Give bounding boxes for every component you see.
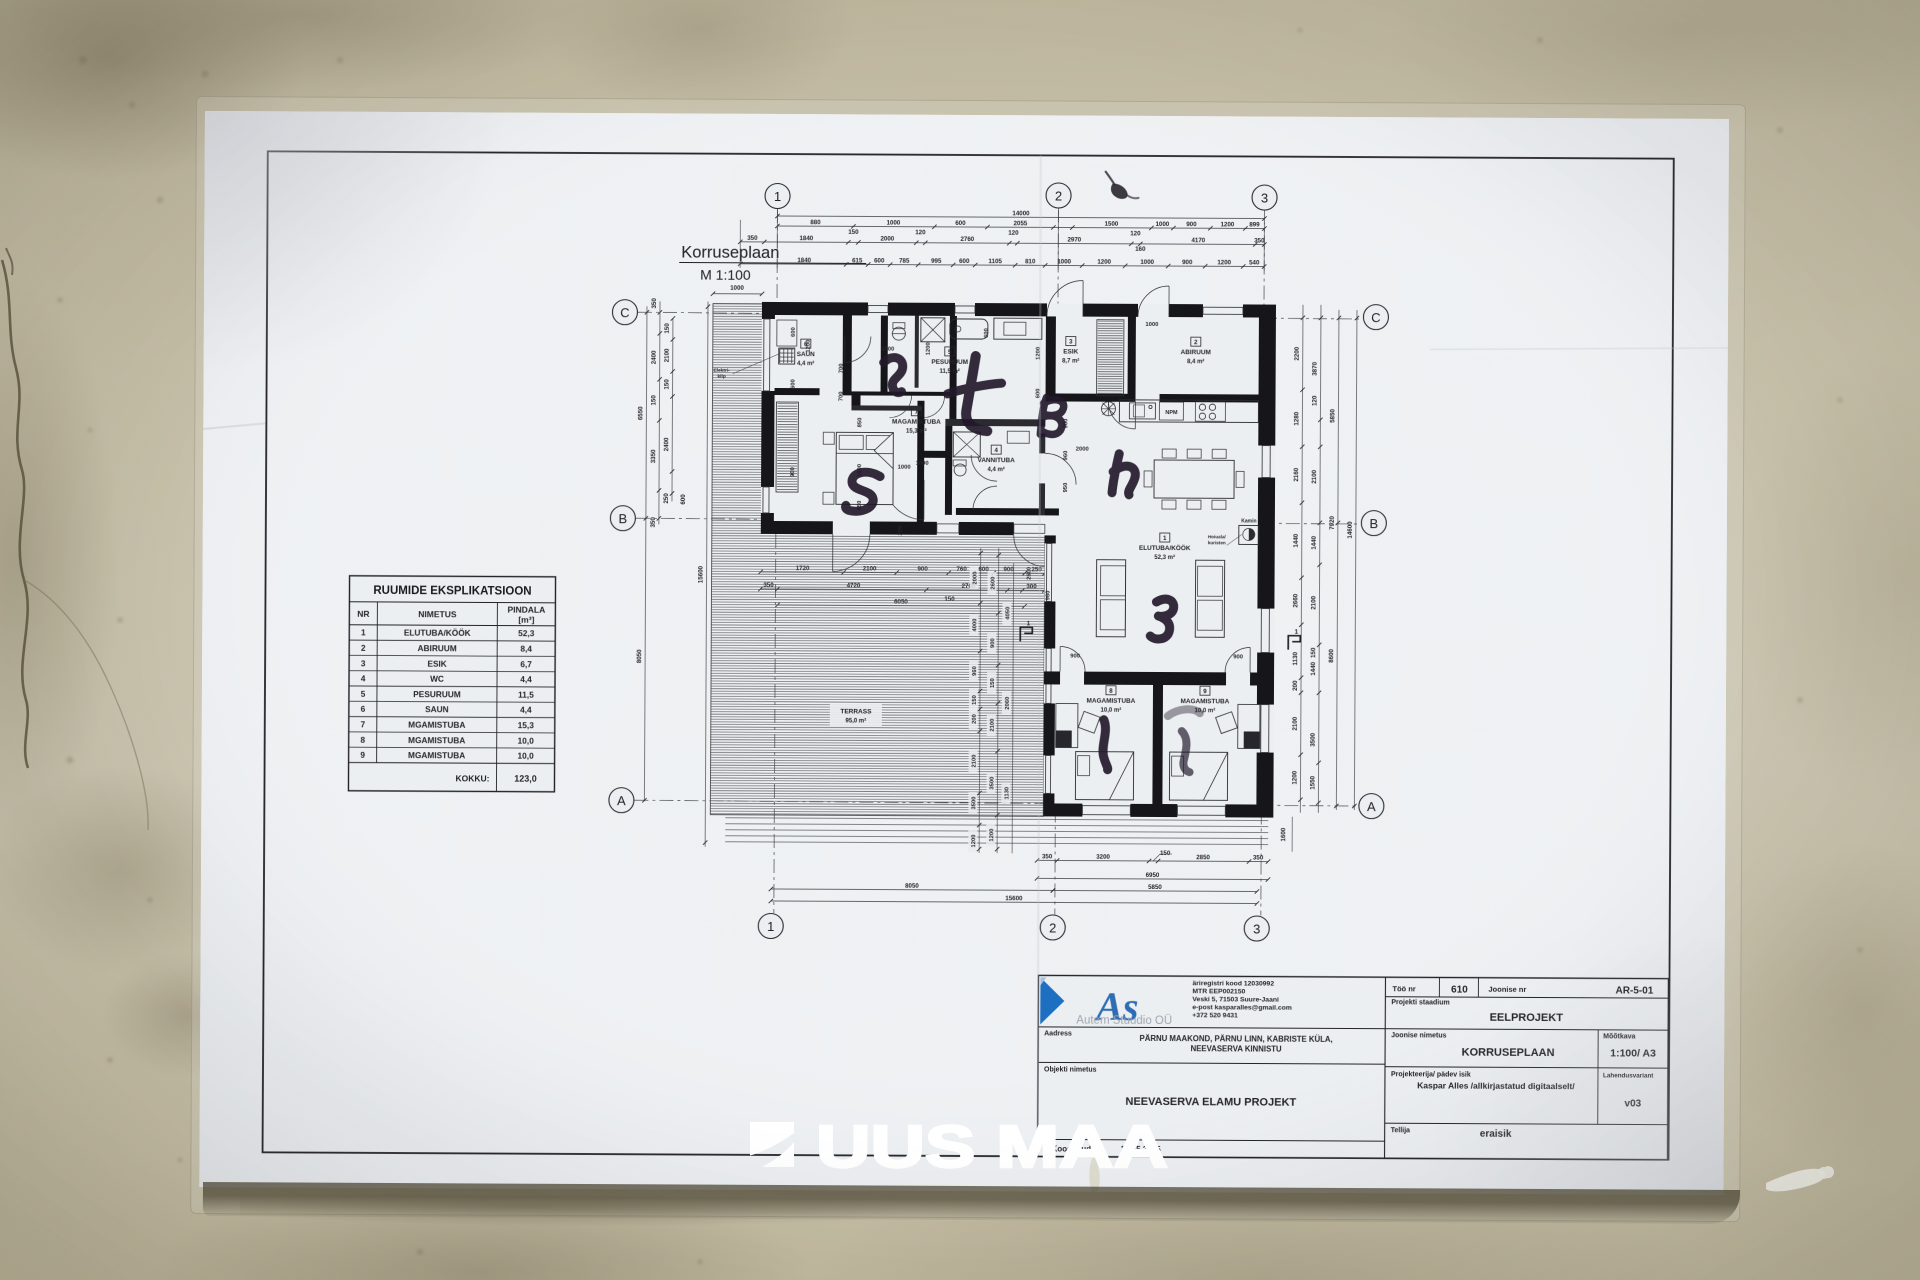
svg-text:2200: 2200 [1294, 346, 1301, 360]
svg-text:äriregistri kood 12030992: äriregistri kood 12030992 [1192, 980, 1274, 987]
svg-text:160: 160 [1135, 246, 1146, 253]
svg-text:960: 960 [972, 666, 978, 676]
svg-text:4,4: 4,4 [520, 674, 532, 684]
svg-text:2: 2 [1194, 339, 1198, 346]
svg-text:3200: 3200 [1096, 853, 1110, 860]
svg-text:1: 1 [1294, 629, 1298, 636]
svg-text:5: 5 [948, 349, 952, 356]
svg-text:150: 150 [650, 395, 657, 406]
svg-text:15600: 15600 [1005, 895, 1023, 902]
svg-text:1000: 1000 [1140, 259, 1154, 266]
svg-text:200: 200 [972, 714, 978, 724]
svg-text:850: 850 [857, 418, 863, 428]
svg-text:11,5 m²: 11,5 m² [939, 368, 959, 375]
svg-text:2760: 2760 [960, 236, 974, 243]
svg-text:1: 1 [361, 627, 366, 637]
svg-text:4: 4 [361, 673, 366, 683]
svg-text:6050: 6050 [894, 598, 908, 605]
svg-text:Aadress: Aadress [1044, 1030, 1072, 1037]
svg-text:3: 3 [1253, 921, 1260, 936]
svg-text:7920: 7920 [1329, 515, 1336, 529]
svg-text:2850: 2850 [1196, 854, 1210, 861]
svg-text:2100: 2100 [990, 719, 996, 732]
svg-text:Autem Stuudio OÜ: Autem Stuudio OÜ [1076, 1015, 1172, 1028]
svg-text:600: 600 [874, 257, 885, 264]
svg-text:600: 600 [955, 220, 966, 227]
svg-text:PÄRNU MAAKOND, PÄRNU LINN, KAB: PÄRNU MAAKOND, PÄRNU LINN, KABRISTE KÜLA… [1140, 1034, 1333, 1044]
svg-text:6550: 6550 [637, 406, 644, 420]
svg-text:10,0: 10,0 [518, 735, 535, 745]
svg-text:1200: 1200 [1291, 770, 1298, 784]
svg-text:1000: 1000 [916, 461, 929, 467]
svg-text:VANNITUBA: VANNITUBA [978, 457, 1016, 464]
svg-text:2600: 2600 [991, 577, 997, 590]
svg-text:120: 120 [915, 229, 926, 236]
svg-text:8050: 8050 [636, 649, 643, 663]
svg-text:1280: 1280 [1293, 411, 1300, 425]
svg-text:4,4: 4,4 [520, 705, 532, 715]
svg-text:600: 600 [959, 258, 970, 265]
svg-text:Objekti nimetus: Objekti nimetus [1044, 1066, 1097, 1073]
svg-text:2000: 2000 [881, 347, 894, 353]
svg-text:C: C [1371, 310, 1380, 325]
svg-text:2000: 2000 [1076, 447, 1089, 453]
svg-text:2100: 2100 [664, 348, 671, 362]
svg-text:Töö nr: Töö nr [1392, 984, 1415, 993]
svg-text:Elektri-: Elektri- [713, 368, 730, 374]
svg-text:6,7: 6,7 [520, 659, 532, 669]
svg-text:4,4 m²: 4,4 m² [987, 466, 1004, 473]
svg-text:ABIRUUM: ABIRUUM [1181, 349, 1211, 356]
svg-text:8: 8 [1109, 688, 1113, 695]
svg-text:NEEVASERVA ELAMU PROJEKT: NEEVASERVA ELAMU PROJEKT [1125, 1096, 1296, 1109]
svg-text:7: 7 [915, 409, 919, 416]
svg-text:900: 900 [1070, 654, 1080, 660]
svg-text:15,3 m²: 15,3 m² [906, 428, 927, 435]
svg-text:4,4 m²: 4,4 m² [797, 360, 814, 367]
svg-text:8,4 m²: 8,4 m² [1187, 358, 1204, 365]
svg-text:1000: 1000 [1057, 258, 1071, 265]
svg-text:NIMETUS: NIMETUS [418, 609, 457, 619]
svg-text:1: 1 [1163, 535, 1167, 542]
svg-text:ELUTUBA/KÖÖK: ELUTUBA/KÖÖK [404, 628, 471, 638]
svg-text:SAUN: SAUN [425, 704, 449, 714]
svg-text:NPM: NPM [1165, 410, 1178, 416]
svg-text:NR: NR [357, 609, 369, 619]
svg-text:UUS MAA: UUS MAA [816, 1120, 1168, 1180]
svg-text:150: 150 [1160, 850, 1171, 857]
svg-text:WC: WC [430, 674, 444, 684]
svg-text:52,3 m²: 52,3 m² [1154, 554, 1175, 561]
svg-text:2100: 2100 [1311, 469, 1318, 483]
svg-text:300: 300 [1026, 583, 1037, 590]
svg-text:900: 900 [917, 566, 928, 573]
svg-text:2000: 2000 [973, 572, 979, 585]
svg-text:700: 700 [838, 391, 844, 401]
svg-text:900: 900 [990, 638, 996, 648]
svg-text:M 1:100: M 1:100 [700, 267, 751, 283]
svg-text:5850: 5850 [1148, 884, 1162, 891]
svg-text:880: 880 [810, 219, 821, 226]
svg-text:150: 150 [1310, 647, 1317, 658]
svg-text:A: A [617, 793, 626, 808]
svg-text:Tellija: Tellija [1391, 1127, 1410, 1134]
svg-text:350: 350 [650, 517, 657, 528]
svg-text:350: 350 [747, 235, 758, 242]
svg-text:150: 150 [664, 323, 671, 334]
svg-text:52,3: 52,3 [518, 628, 535, 638]
svg-text:3350: 3350 [650, 449, 657, 463]
svg-text:4170: 4170 [1191, 237, 1205, 244]
svg-text:3870: 3870 [1312, 361, 1319, 375]
svg-text:10,0 m²: 10,0 m² [1101, 707, 1122, 714]
svg-text:785: 785 [899, 257, 910, 264]
svg-text:760: 760 [956, 566, 967, 573]
svg-text:3: 3 [361, 658, 366, 668]
svg-text:600: 600 [978, 566, 989, 573]
svg-text:150: 150 [944, 596, 955, 603]
svg-text:3: 3 [1261, 191, 1268, 206]
svg-text:2100: 2100 [1292, 716, 1299, 730]
svg-text:2600: 2600 [1027, 567, 1033, 580]
svg-text:MAGAMISTUBA: MAGAMISTUBA [892, 419, 941, 426]
svg-text:4000: 4000 [972, 619, 978, 632]
svg-text:2060: 2060 [1005, 697, 1011, 710]
svg-text:PINDALA: PINDALA [507, 605, 545, 615]
svg-text:MGAMISTUBA: MGAMISTUBA [408, 720, 465, 730]
svg-text:11,5: 11,5 [518, 689, 534, 699]
svg-text:600: 600 [791, 379, 797, 389]
svg-text:[m³]: [m³] [518, 615, 534, 625]
svg-text:2970: 2970 [1067, 236, 1081, 243]
svg-text:Korruseplaan: Korruseplaan [681, 243, 779, 262]
svg-text:1500: 1500 [1105, 221, 1119, 228]
svg-text:14000: 14000 [1012, 210, 1030, 217]
svg-text:2: 2 [1049, 920, 1056, 935]
svg-text:2660: 2660 [1292, 593, 1299, 607]
svg-text:950: 950 [1063, 483, 1069, 493]
svg-text:1840: 1840 [799, 235, 813, 242]
svg-text:700: 700 [839, 363, 845, 373]
svg-text:600: 600 [791, 327, 797, 337]
svg-text:e-post kasparalles@gmail.com: e-post kasparalles@gmail.com [1192, 1004, 1292, 1012]
svg-text:8600: 8600 [1328, 648, 1335, 662]
svg-text:TERRASS: TERRASS [840, 708, 872, 715]
svg-text:6: 6 [361, 704, 366, 714]
svg-text:150: 150 [664, 379, 671, 390]
svg-text:2160: 2160 [1293, 467, 1300, 481]
svg-text:ESIK: ESIK [427, 658, 446, 668]
svg-text:+372 520 9431: +372 520 9431 [1192, 1012, 1238, 1019]
svg-text:MGAMISTUBA: MGAMISTUBA [408, 735, 465, 745]
svg-text:9: 9 [360, 750, 365, 760]
svg-text:900: 900 [1233, 654, 1243, 660]
svg-text:960: 960 [1045, 591, 1051, 601]
svg-text:3500: 3500 [971, 797, 977, 810]
svg-text:250: 250 [1031, 566, 1042, 573]
svg-text:7: 7 [360, 719, 365, 729]
svg-text:1130: 1130 [1004, 787, 1010, 800]
svg-text:1440: 1440 [1293, 533, 1300, 547]
svg-text:8,4: 8,4 [520, 644, 532, 654]
svg-text:1000: 1000 [887, 219, 901, 226]
svg-text:600: 600 [984, 328, 990, 338]
svg-text:2400: 2400 [663, 437, 670, 451]
svg-text:200: 200 [1292, 680, 1299, 691]
svg-text:123,0: 123,0 [514, 774, 537, 784]
svg-text:2055: 2055 [1014, 220, 1028, 227]
svg-text:120: 120 [1008, 230, 1019, 237]
svg-text:1200: 1200 [1221, 221, 1235, 228]
svg-text:ELUTUBA/KÖÖK: ELUTUBA/KÖÖK [1139, 543, 1191, 552]
svg-text:1: 1 [774, 189, 781, 204]
svg-text:150: 150 [990, 678, 996, 688]
svg-text:150: 150 [972, 695, 978, 705]
svg-text:120: 120 [1311, 395, 1318, 406]
svg-text:900: 900 [1186, 221, 1197, 228]
svg-text:Kamin: Kamin [1241, 518, 1256, 524]
svg-text:350: 350 [1253, 854, 1264, 861]
svg-text:899: 899 [1249, 221, 1260, 228]
svg-text:960: 960 [1063, 451, 1069, 461]
svg-text:MAGAMISTUBA: MAGAMISTUBA [1181, 698, 1230, 705]
svg-text:RUUMIDE EKSPLIKATSIOON: RUUMIDE EKSPLIKATSIOON [373, 585, 531, 598]
svg-text:PESURUUM: PESURUUM [413, 689, 461, 699]
svg-text:2: 2 [361, 643, 366, 653]
svg-text:1: 1 [767, 919, 774, 934]
svg-text:Veski 5, 71503 Suure-Jaani: Veski 5, 71503 Suure-Jaani [1192, 996, 1279, 1003]
svg-text:B: B [1369, 516, 1378, 531]
svg-text:600: 600 [680, 494, 687, 505]
svg-text:A: A [1367, 799, 1376, 814]
svg-text:540: 540 [1249, 259, 1260, 266]
svg-text:4720: 4720 [847, 582, 861, 589]
svg-text:Hoiuala/: Hoiuala/ [1208, 534, 1227, 539]
svg-text:MGAMISTUBA: MGAMISTUBA [408, 750, 465, 760]
svg-text:4050: 4050 [1005, 607, 1011, 620]
svg-text:5: 5 [361, 689, 366, 699]
svg-text:1000: 1000 [898, 465, 911, 471]
svg-text:3500: 3500 [1310, 732, 1317, 746]
svg-text:1720: 1720 [796, 565, 810, 572]
svg-text:120: 120 [1130, 230, 1141, 237]
svg-text:1200: 1200 [1217, 259, 1231, 266]
svg-text:3500: 3500 [989, 777, 995, 790]
svg-text:1440: 1440 [1311, 535, 1318, 549]
svg-text:10,0: 10,0 [518, 751, 535, 761]
svg-text:1200: 1200 [806, 340, 812, 353]
svg-text:14600: 14600 [1347, 521, 1354, 539]
svg-text:1200: 1200 [926, 342, 932, 355]
svg-text:9: 9 [1203, 688, 1207, 695]
svg-text:2100: 2100 [863, 565, 877, 572]
svg-text:350: 350 [763, 582, 774, 589]
svg-text:kilp: kilp [717, 374, 725, 380]
svg-text:1: 1 [1026, 620, 1030, 627]
svg-text:8,7 m²: 8,7 m² [1062, 357, 1079, 364]
svg-text:4: 4 [994, 447, 998, 454]
svg-text:2100: 2100 [1310, 595, 1317, 609]
svg-text:B: B [618, 511, 627, 526]
svg-text:2000: 2000 [880, 235, 894, 242]
svg-text:MAGAMISTUBA: MAGAMISTUBA [1087, 698, 1136, 705]
svg-text:1200: 1200 [971, 835, 977, 848]
svg-text:900: 900 [1003, 566, 1014, 573]
svg-text:1130: 1130 [1292, 651, 1299, 665]
svg-text:1200: 1200 [1097, 258, 1111, 265]
svg-text:PESURUUM: PESURUUM [931, 359, 968, 366]
svg-text:1000: 1000 [730, 285, 744, 292]
svg-text:810: 810 [1025, 258, 1036, 265]
svg-text:350: 350 [1042, 853, 1053, 860]
svg-text:1200: 1200 [989, 829, 995, 842]
svg-text:KOKKU:: KOKKU: [455, 773, 489, 783]
svg-text:900: 900 [790, 467, 796, 477]
svg-text:C: C [620, 305, 629, 320]
svg-text:1840: 1840 [797, 257, 811, 264]
svg-text:615: 615 [852, 257, 863, 264]
svg-text:1000: 1000 [1156, 221, 1170, 228]
svg-text:ABIRUUM: ABIRUUM [418, 643, 457, 653]
svg-text:1600: 1600 [1280, 827, 1287, 841]
svg-text:250: 250 [663, 493, 670, 504]
svg-text:3: 3 [1069, 339, 1073, 346]
svg-text:15,3: 15,3 [518, 720, 535, 730]
svg-text:95,0 m²: 95,0 m² [845, 717, 866, 724]
svg-text:6950: 6950 [1146, 872, 1160, 879]
svg-text:2400: 2400 [651, 350, 658, 364]
svg-text:8050: 8050 [905, 882, 919, 889]
svg-text:995: 995 [931, 258, 942, 265]
svg-text:350: 350 [651, 298, 658, 309]
svg-text:8: 8 [360, 735, 365, 745]
svg-text:5850: 5850 [1329, 408, 1336, 422]
svg-text:250: 250 [898, 526, 904, 536]
svg-text:1000: 1000 [1145, 322, 1158, 328]
svg-text:NEEVASERVA KINNISTU: NEEVASERVA KINNISTU [1191, 1044, 1283, 1053]
svg-text:350: 350 [1254, 237, 1265, 244]
svg-text:2100: 2100 [972, 755, 978, 768]
svg-text:1550: 1550 [1309, 775, 1316, 789]
svg-text:kuristen: kuristen [1208, 540, 1226, 545]
svg-text:1105: 1105 [988, 258, 1002, 265]
svg-text:15600: 15600 [698, 565, 705, 583]
svg-text:900: 900 [1182, 259, 1193, 266]
svg-text:MTR EEP002150: MTR EEP002150 [1192, 988, 1245, 995]
svg-text:1440: 1440 [1310, 661, 1317, 675]
svg-text:ESIK: ESIK [1063, 348, 1078, 355]
svg-text:150: 150 [848, 229, 859, 236]
svg-text:2: 2 [1055, 188, 1062, 203]
